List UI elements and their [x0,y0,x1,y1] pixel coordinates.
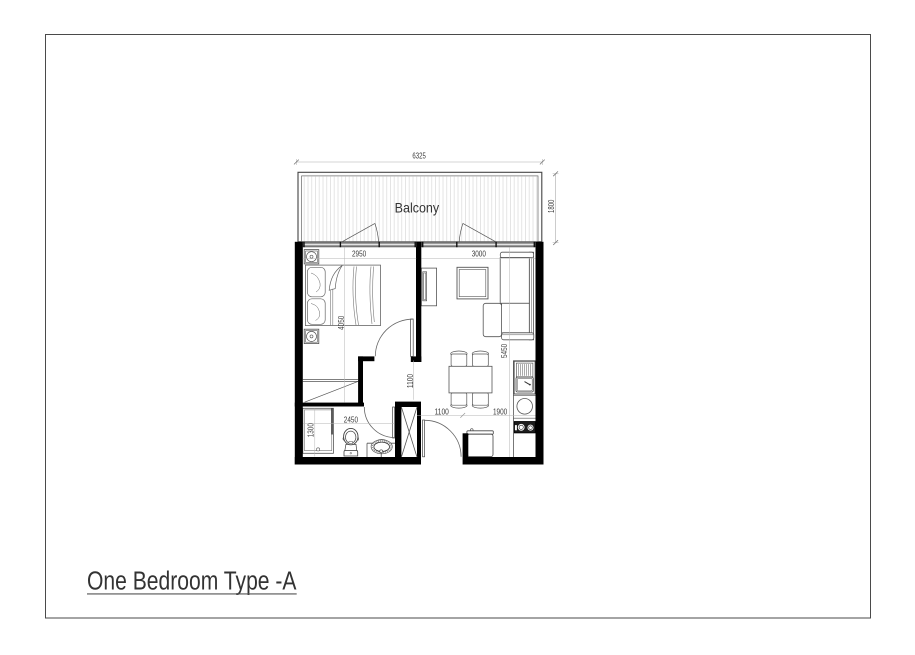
svg-text:6325: 6325 [412,151,426,160]
svg-text:1100: 1100 [406,373,415,388]
svg-text:2450: 2450 [344,415,359,424]
svg-text:4050: 4050 [337,315,346,330]
svg-text:Balcony: Balcony [395,201,440,216]
svg-text:1100: 1100 [435,407,450,416]
svg-text:1300: 1300 [307,423,316,438]
svg-text:One Bedroom Type -A: One Bedroom Type -A [87,568,297,596]
svg-text:3000: 3000 [472,249,487,258]
svg-text:2950: 2950 [352,249,367,258]
svg-text:1900: 1900 [493,407,508,416]
svg-text:5450: 5450 [500,343,509,358]
svg-text:1800: 1800 [547,199,556,213]
